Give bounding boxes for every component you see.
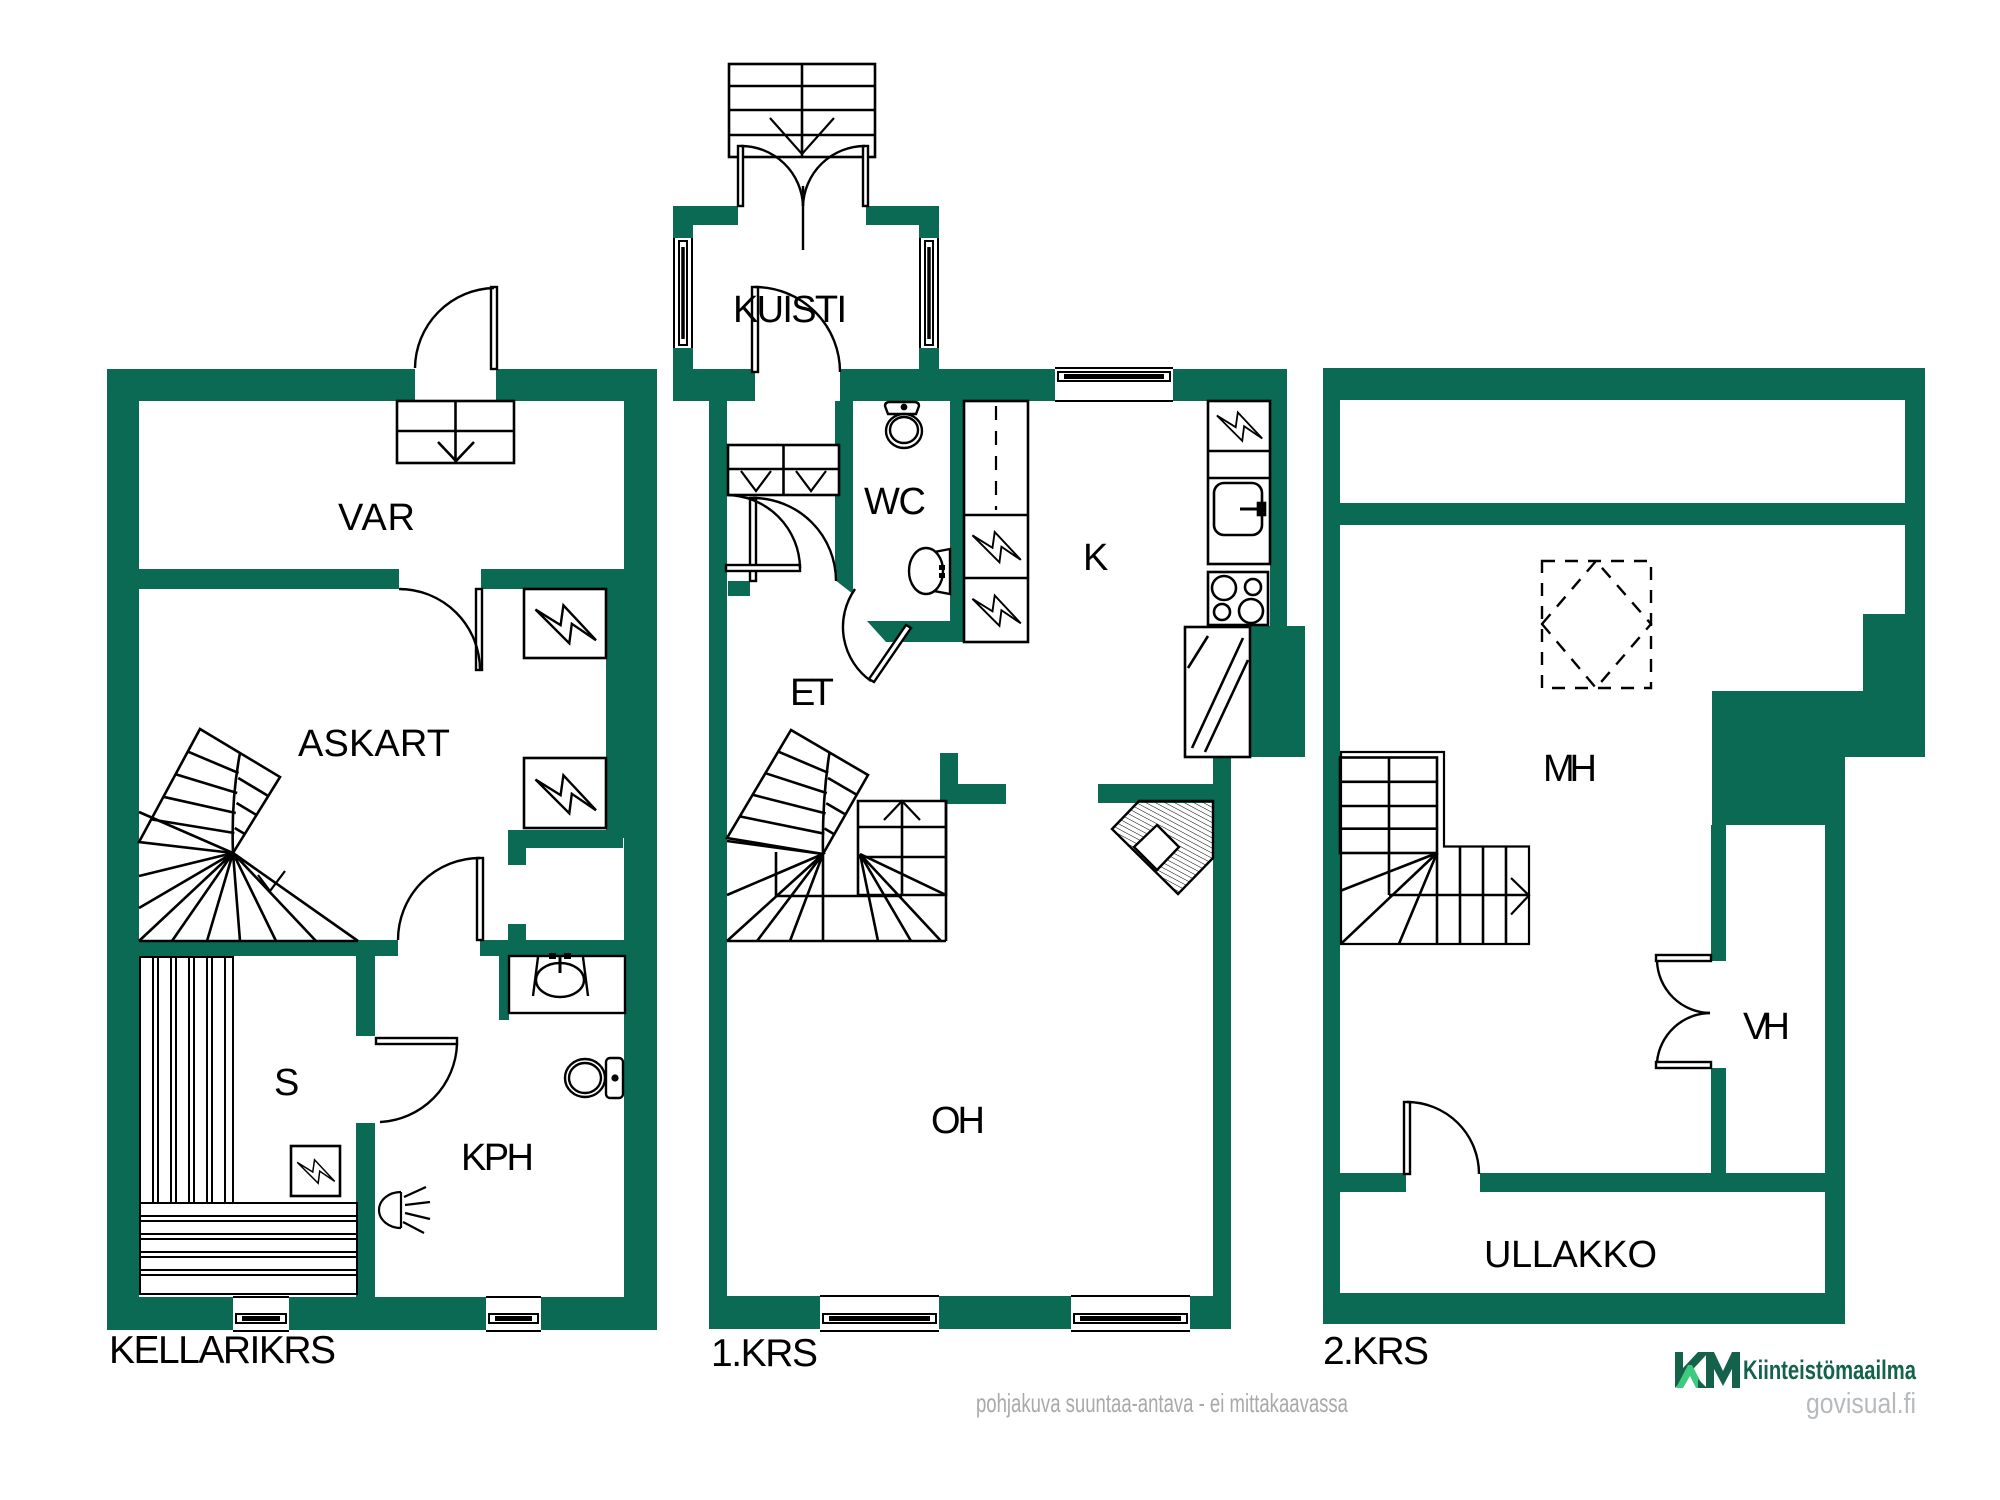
svg-text:S: S (274, 1062, 299, 1104)
svg-text:VH: VH (1743, 1006, 1790, 1048)
svg-text:ASKART: ASKART (298, 723, 450, 765)
svg-text:OH: OH (931, 1100, 985, 1142)
svg-text:K: K (1083, 537, 1108, 579)
svg-text:MH: MH (1543, 748, 1597, 790)
svg-text:2.KRS: 2.KRS (1323, 1330, 1429, 1373)
svg-text:ULLAKKO: ULLAKKO (1484, 1234, 1657, 1276)
svg-text:KELLARIKRS: KELLARIKRS (109, 1329, 336, 1372)
svg-text:WC: WC (864, 481, 926, 523)
svg-text:pohjakuva suuntaa-antava - ei: pohjakuva suuntaa-antava - ei mittakaava… (976, 1388, 1348, 1418)
svg-text:VAR: VAR (338, 497, 415, 539)
svg-text:KUISTI: KUISTI (733, 289, 847, 331)
svg-text:KPH: KPH (461, 1137, 534, 1179)
svg-text:1.KRS: 1.KRS (711, 1332, 818, 1375)
svg-text:ET: ET (790, 672, 834, 714)
svg-text:govisual.fi: govisual.fi (1806, 1388, 1916, 1420)
svg-text:Kiinteistömaailma: Kiinteistömaailma (1743, 1355, 1917, 1385)
